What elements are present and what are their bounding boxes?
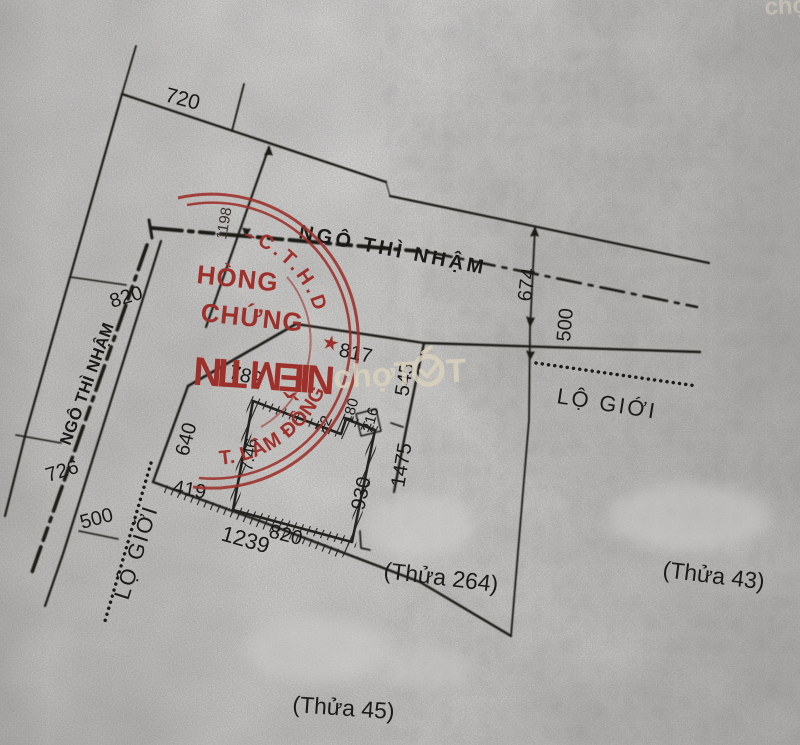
svg-text:chợT: chợT <box>764 0 800 21</box>
svg-text:chợ: chợ <box>332 355 396 395</box>
svg-text:674: 674 <box>514 267 540 303</box>
svg-text:500: 500 <box>553 307 578 342</box>
svg-text:T: T <box>445 351 467 389</box>
